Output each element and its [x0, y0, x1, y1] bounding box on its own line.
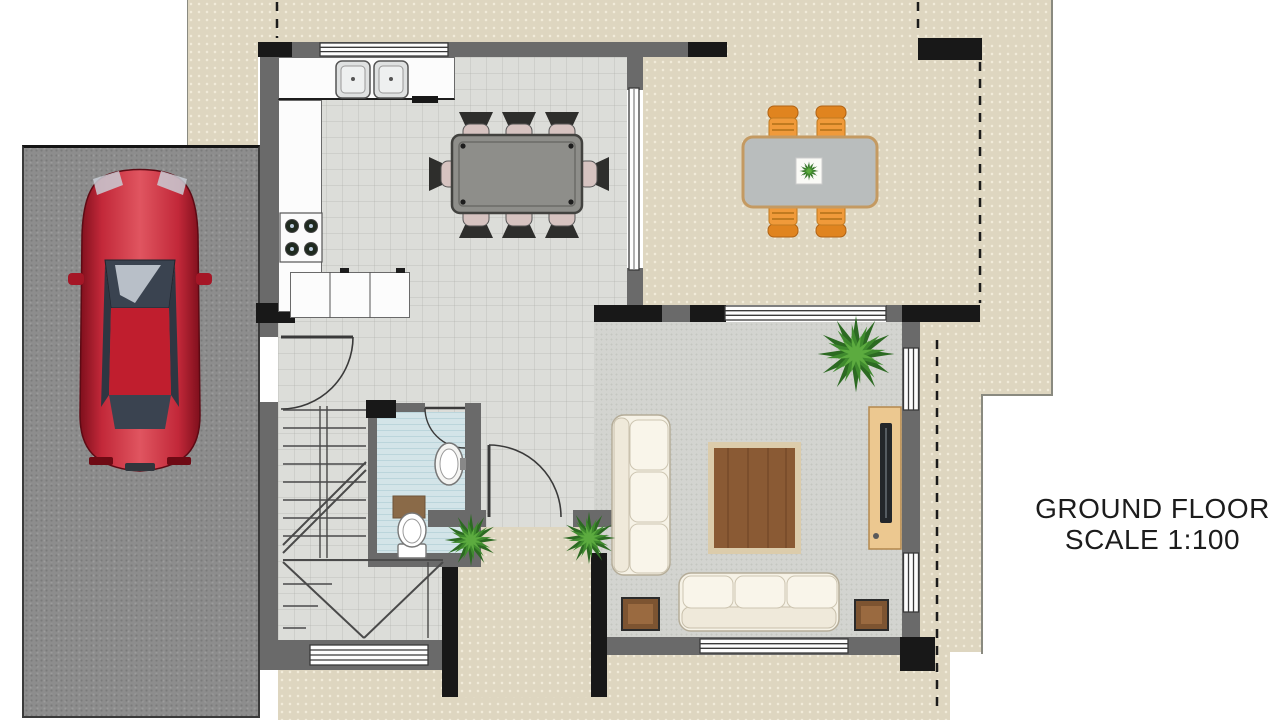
area-rug: [708, 442, 801, 554]
kitchen-window: [320, 43, 448, 56]
front-door: [489, 445, 561, 517]
corner-plant: [817, 315, 895, 393]
floor-plan-canvas: GROUND FLOOR SCALE 1:100: [0, 0, 1280, 720]
plan-title-block: GROUND FLOOR SCALE 1:100: [1035, 493, 1270, 555]
porch-plant-right: [562, 511, 616, 565]
cabinet-divisions: [330, 268, 405, 318]
side-table-right: [855, 600, 888, 630]
patio-set: [743, 106, 877, 237]
living-bottom-window: [700, 639, 848, 653]
living-right-window-upper: [904, 348, 919, 410]
plan-scale-label: SCALE 1:100: [1035, 524, 1270, 555]
doors: [281, 337, 561, 517]
toilet: [398, 513, 426, 558]
patio-sliding-door: [629, 88, 639, 270]
tv-console: [869, 407, 901, 549]
living-right-window-lower: [904, 553, 919, 612]
bathroom-door: [425, 408, 465, 448]
plan-title: GROUND FLOOR: [1035, 493, 1270, 524]
porch-plant-left: [444, 513, 498, 567]
stove-cooktop: [280, 213, 322, 262]
floor-plan-overlay: [0, 0, 1280, 720]
living-room-furniture: [612, 315, 901, 631]
dining-set: [429, 112, 609, 238]
dining-table: [452, 135, 582, 213]
side-table-left: [622, 598, 659, 630]
kitchen-double-sink: [336, 61, 408, 98]
living-top-window: [725, 306, 886, 320]
red-car: [68, 170, 212, 472]
bathroom-sink: [435, 443, 466, 485]
sofa-left: [612, 415, 670, 575]
stairs-window: [310, 645, 428, 665]
side-door: [281, 337, 353, 409]
sofa-bottom: [679, 573, 839, 631]
